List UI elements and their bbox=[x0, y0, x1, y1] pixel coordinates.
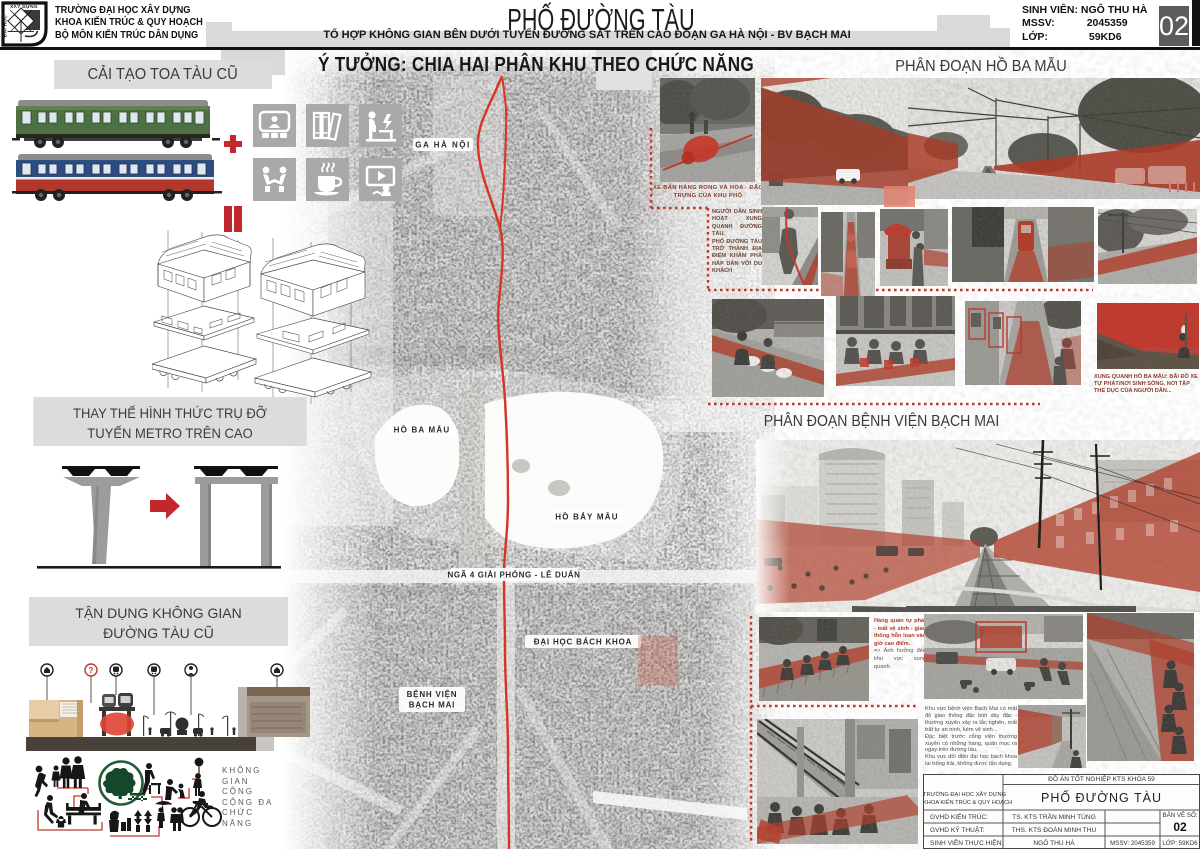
svg-text:ĐẠI HỌC: ĐẠI HỌC bbox=[3, 15, 8, 37]
svg-text:XÂY DỰNG: XÂY DỰNG bbox=[10, 3, 38, 9]
svg-text:HỒ BA MẪU: HỒ BA MẪU bbox=[394, 425, 451, 435]
svg-text:ĐẠI HỌC BÁCH KHOA: ĐẠI HỌC BÁCH KHOA bbox=[534, 638, 633, 647]
svg-text:NGÃ 4 GIẢI PHÓNG - LÊ DUẨN: NGÃ 4 GIẢI PHÓNG - LÊ DUẨN bbox=[448, 571, 581, 580]
svg-text:GA HÀ NỘI: GA HÀ NỘI bbox=[415, 141, 470, 150]
svg-text:BẠCH MAI: BẠCH MAI bbox=[409, 701, 455, 710]
svg-text:HỒ BẢY MẪU: HỒ BẢY MẪU bbox=[555, 512, 618, 522]
svg-text:?: ? bbox=[89, 666, 94, 675]
svg-text:BỆNH VIỆN: BỆNH VIỆN bbox=[407, 690, 458, 699]
